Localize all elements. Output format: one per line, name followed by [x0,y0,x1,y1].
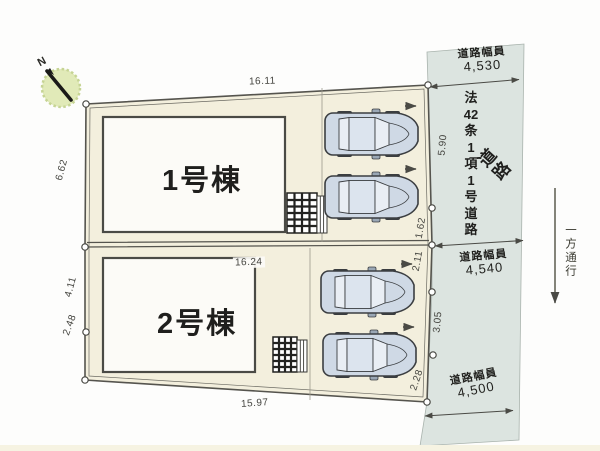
dimension-top-width: 16.11 [249,76,276,88]
building-2-label: 2号棟 [157,300,237,342]
car-icon [321,264,414,317]
road-width-top: 道路幅員 4,530 [443,44,521,75]
bottom-border-band [0,445,600,451]
car-icon [323,327,416,380]
car-icon [325,106,418,159]
porch-grid-2 [273,337,307,372]
dimension-right-4: 3.05 [432,311,445,333]
compass-icon [42,68,80,107]
dimension-right-1: 5.90 [437,134,450,156]
dimension-bottom-width: 15.97 [241,397,269,410]
building-1-label: 1号棟 [162,157,242,199]
porch-grid-1 [287,193,327,233]
site-plan: 1号棟 2号棟 16.11 16.24 15.97 6.62 4.11 2.48… [0,0,600,451]
car-icon [325,169,418,222]
one-way-label: 一方通行 [562,224,578,278]
dimension-lot2-width: 16.24 [233,256,265,268]
